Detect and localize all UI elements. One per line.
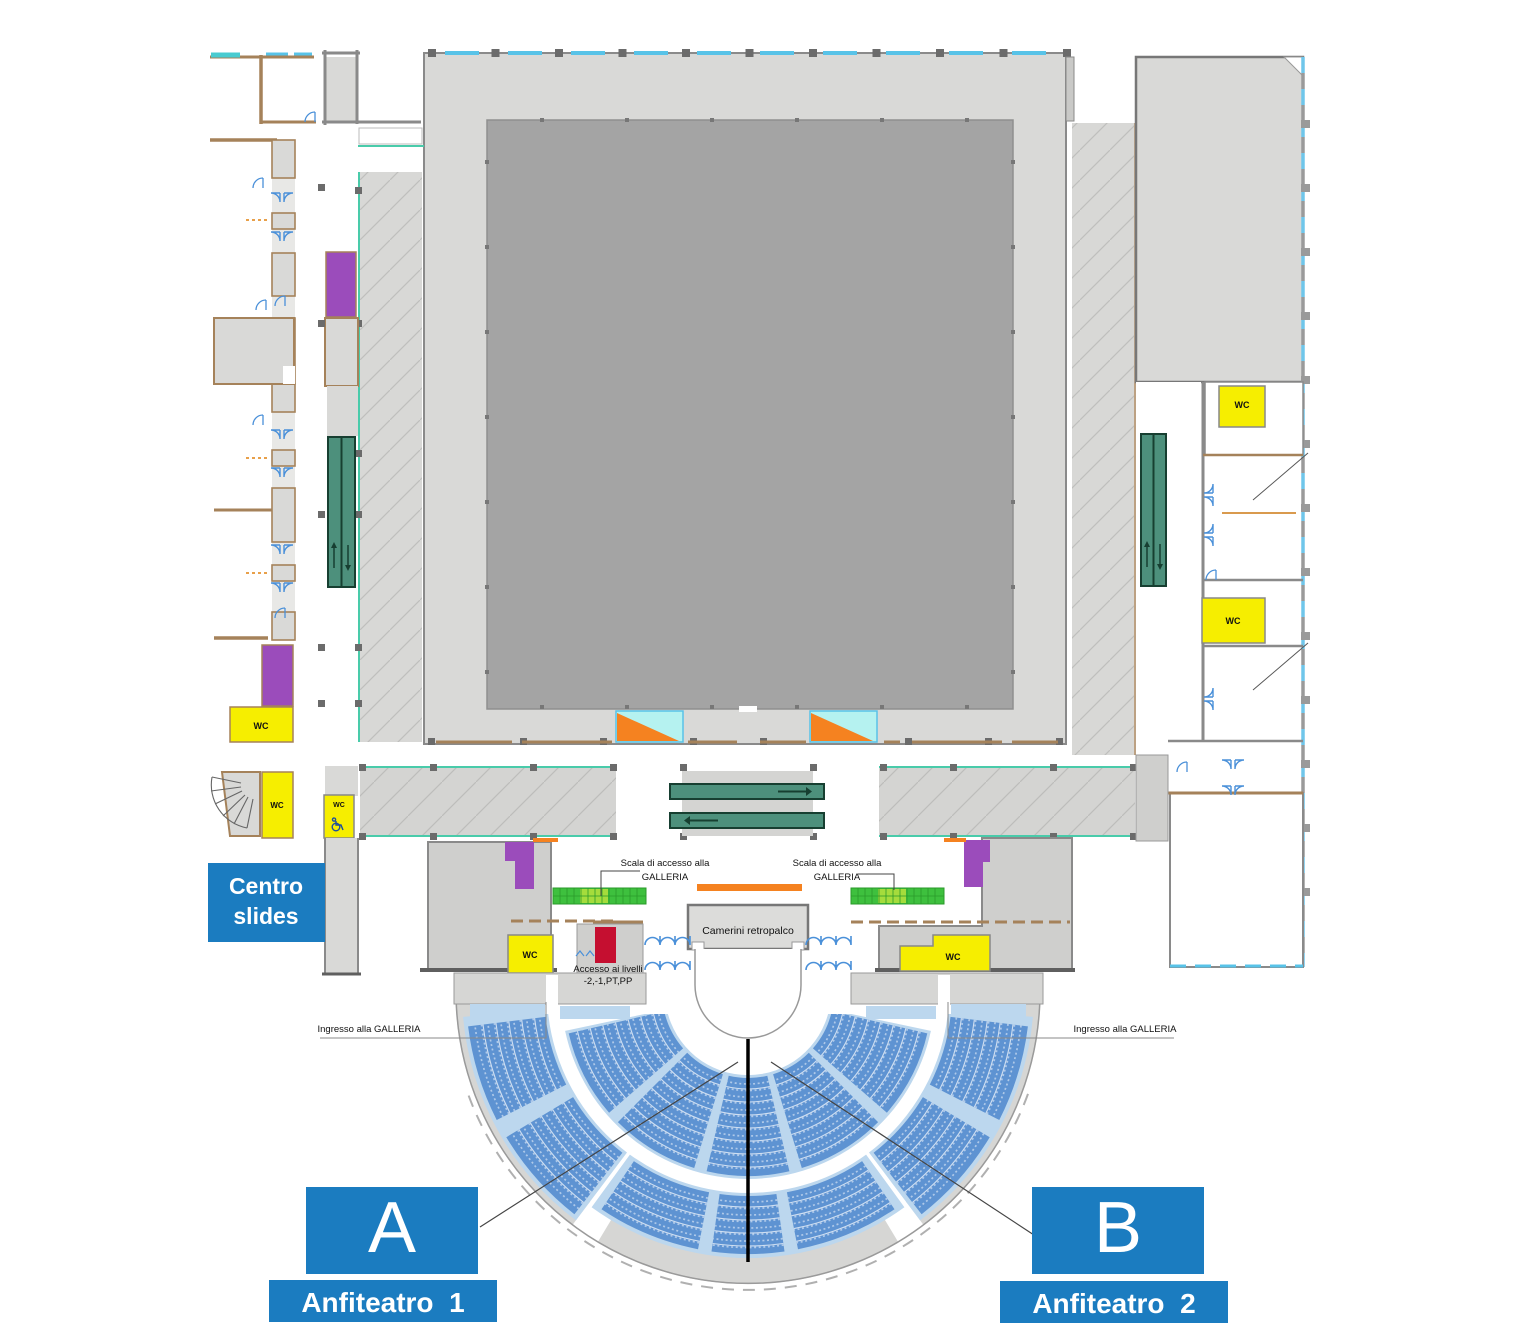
svg-text:-2,-1,PT,PP: -2,-1,PT,PP: [584, 976, 633, 987]
svg-text:Camerini retropalco: Camerini retropalco: [702, 925, 794, 937]
svg-text:Anfiteatro 2: Anfiteatro 2: [1032, 1288, 1195, 1319]
svg-text:WC: WC: [1235, 400, 1250, 410]
svg-text:Ingresso alla GALLERIA: Ingresso alla GALLERIA: [318, 1024, 422, 1035]
svg-text:WC: WC: [270, 801, 284, 810]
svg-text:slides: slides: [233, 903, 298, 929]
svg-text:Accesso ai livelli: Accesso ai livelli: [573, 964, 642, 975]
svg-text:WC: WC: [946, 952, 961, 962]
svg-text:B: B: [1094, 1188, 1142, 1268]
svg-text:Anfiteatro 1: Anfiteatro 1: [301, 1287, 464, 1318]
svg-text:Scala di accesso alla: Scala di accesso alla: [793, 858, 882, 869]
svg-text:Scala di accesso alla: Scala di accesso alla: [621, 858, 710, 869]
svg-text:GALLERIA: GALLERIA: [642, 872, 689, 883]
svg-text:Ingresso alla GALLERIA: Ingresso alla GALLERIA: [1074, 1024, 1178, 1035]
svg-text:WC: WC: [333, 802, 345, 809]
svg-text:Centro: Centro: [229, 873, 303, 899]
svg-text:WC: WC: [254, 721, 269, 731]
svg-text:GALLERIA: GALLERIA: [814, 872, 861, 883]
svg-text:WC: WC: [1226, 616, 1241, 626]
svg-text:A: A: [368, 1188, 416, 1268]
svg-text:WC: WC: [523, 950, 538, 960]
